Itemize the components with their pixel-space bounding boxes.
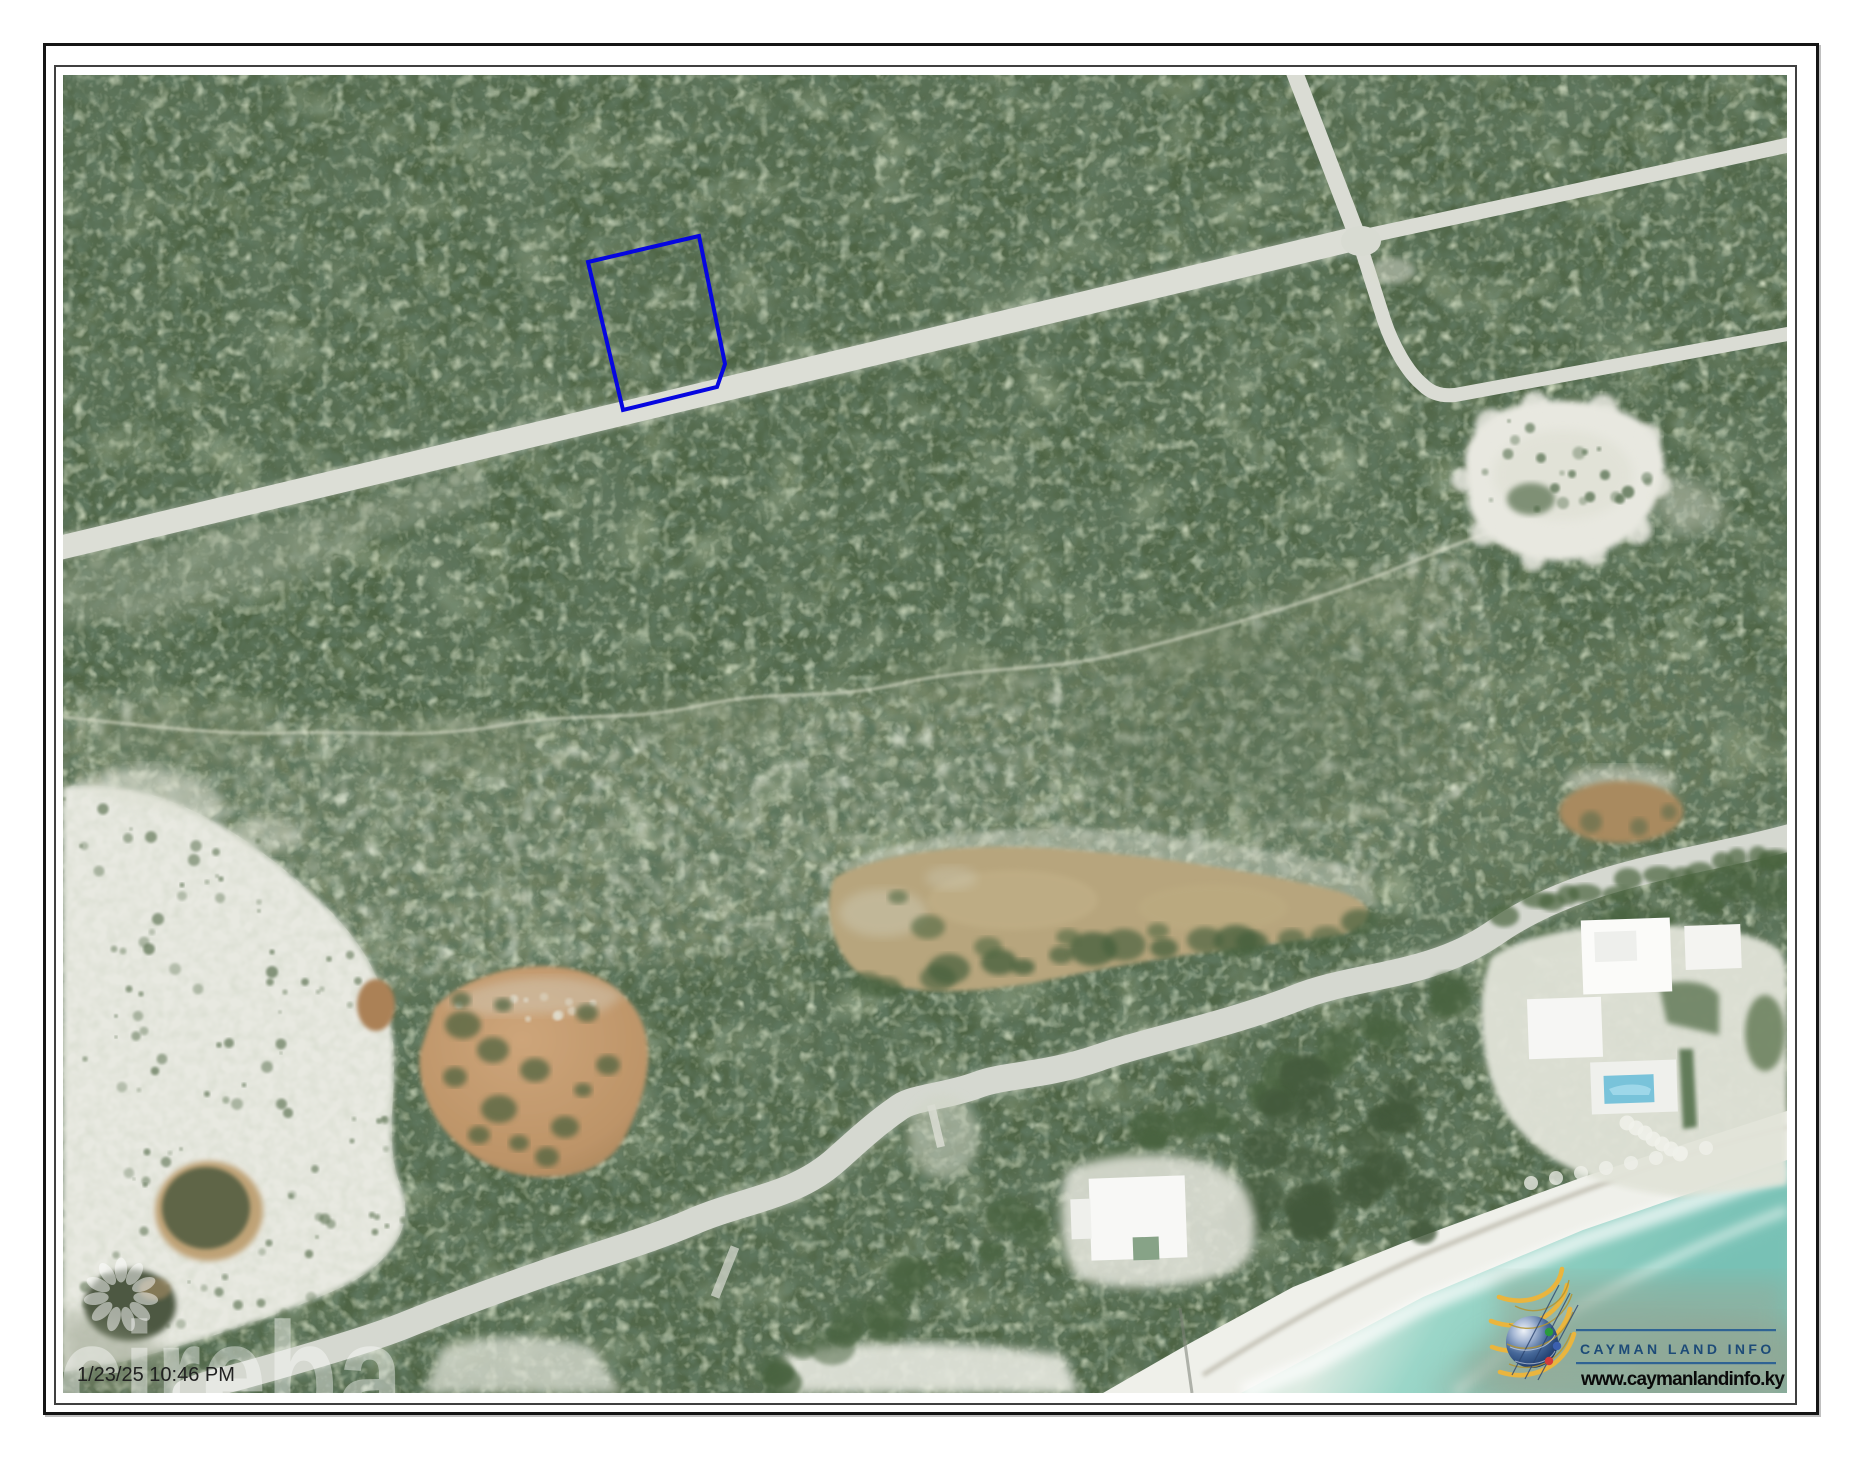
svg-text:CAYMAN LAND INFO: CAYMAN LAND INFO — [1580, 1341, 1775, 1357]
svg-text:www.caymanlandinfo.ky: www.caymanlandinfo.ky — [1580, 1369, 1785, 1390]
svg-text:1/23/25 10:46 PM: 1/23/25 10:46 PM — [77, 1364, 235, 1386]
